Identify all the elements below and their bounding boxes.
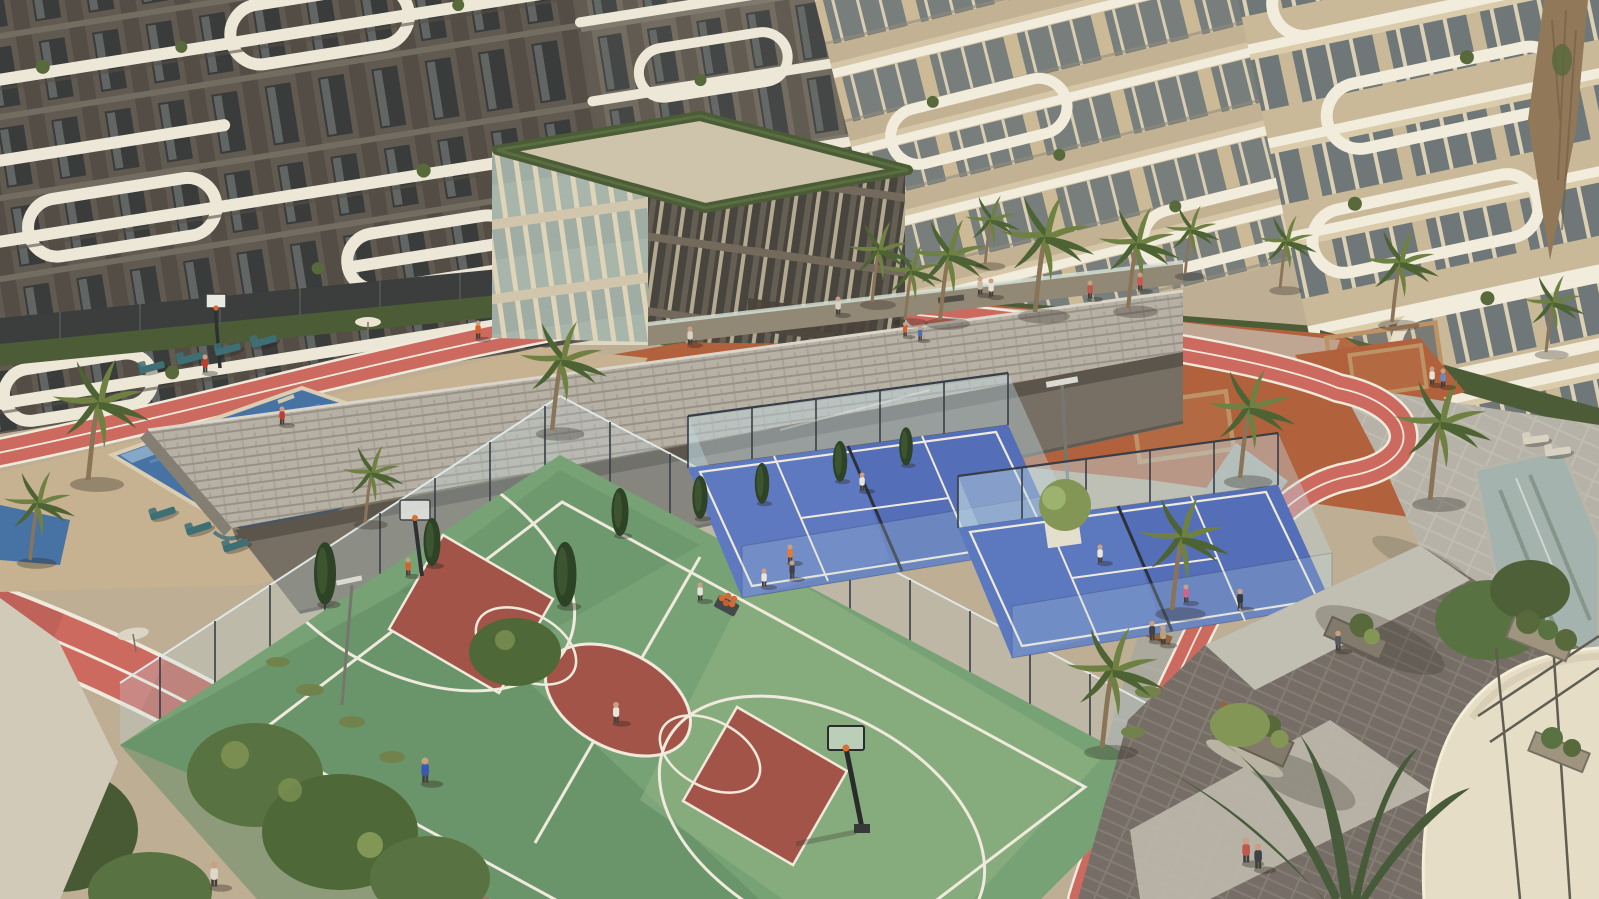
screenshot-canvas: [0, 0, 1599, 899]
warm-light-overlay: [0, 0, 1599, 899]
scene-render: [0, 0, 1599, 899]
